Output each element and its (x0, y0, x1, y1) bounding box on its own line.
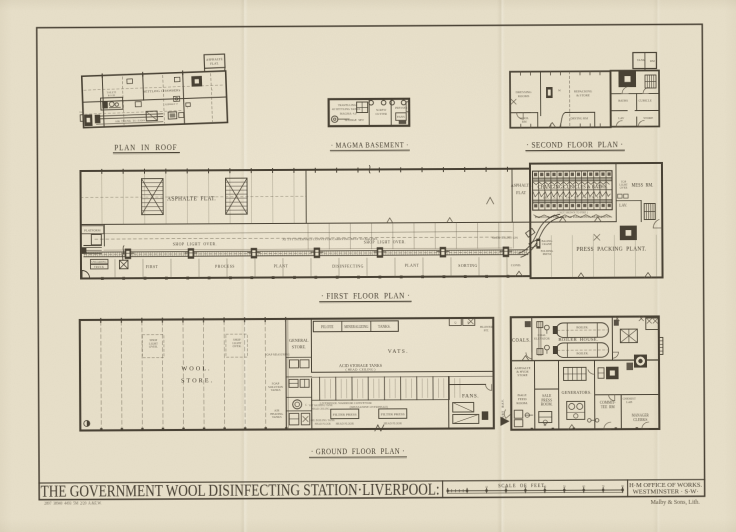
svg-text:VATS.: VATS. (388, 349, 409, 355)
svg-text:· FIRST FLOOR PLAN ·: · FIRST FLOOR PLAN · (321, 290, 410, 300)
svg-text:19. 13. 15. 16. 15. 14. 13. 15: 19. 13. 15. 16. 15. 14. 13. 15. (543, 195, 603, 199)
svg-text:COALS.: COALS. (512, 339, 531, 344)
svg-text:STORE.: STORE. (181, 377, 214, 384)
svg-text:HEAD FLOOR: HEAD FLOOR (315, 422, 331, 425)
svg-text:ELEVATOR: ELEVATOR (534, 337, 551, 341)
svg-text:PILOTE: PILOTE (321, 325, 334, 329)
svg-text:AT 5 FT INTERVALS CONVEYOR CAR: AT 5 FT INTERVALS CONVEYOR CARRYING BEST… (282, 237, 377, 241)
svg-text:TRUCK: TRUCK (94, 266, 104, 269)
svg-text:CLERKS: CLERKS (633, 418, 647, 422)
svg-text:⊕: ⊕ (543, 423, 546, 427)
svg-text:CUTTER: CUTTER (375, 112, 387, 116)
svg-text:H·M OFFICE OF WORKS.: H·M OFFICE OF WORKS. (629, 483, 703, 489)
svg-text:TANKS: TANKS (271, 388, 281, 392)
svg-text:· GROUND FLOOR PLAN ·: · GROUND FLOOR PLAN · (311, 446, 405, 456)
svg-text:C: C (305, 403, 307, 407)
svg-text:(MEZZANINE OVERHEAD): (MEZZANINE OVERHEAD) (350, 406, 388, 409)
svg-text:ASPHALT F: ASPHALT F (165, 103, 179, 106)
svg-text:UNLOADING: UNLOADING (91, 261, 106, 264)
svg-text:ASPHALTE: ASPHALTE (511, 183, 532, 188)
svg-text:TEE RM: TEE RM (601, 405, 616, 409)
svg-text:PROCESS: PROCESS (215, 265, 235, 269)
svg-text:RM: RM (650, 59, 655, 63)
svg-text:ROOM.: ROOM. (541, 403, 553, 407)
svg-text:TANKS.: TANKS. (378, 325, 391, 329)
svg-text:MINERALIZING: MINERALIZING (344, 325, 368, 329)
svg-text:DISINFECTING: DISINFECTING (332, 265, 364, 269)
svg-text:MESS RM.: MESS RM. (632, 182, 654, 188)
svg-text:BOILER HOUSE.: BOILER HOUSE. (558, 337, 598, 342)
svg-text:FANS: FANS (397, 115, 405, 119)
svg-text:ROOMS: ROOMS (518, 94, 530, 98)
svg-text:BOILER.: BOILER. (576, 352, 588, 356)
svg-text:WESTMINSTER · S·W·: WESTMINSTER · S·W· (633, 489, 699, 495)
svg-text:40 SETTLING TANKS: 40 SETTLING TANKS (332, 107, 361, 111)
svg-text:FLAT: FLAT (516, 190, 526, 195)
svg-text:COND.: COND. (511, 263, 522, 267)
svg-text:FILTER PRESS: FILTER PRESS (333, 412, 357, 416)
svg-text:PRESS: PRESS (543, 252, 552, 256)
svg-text:HEAD FLOOR: HEAD FLOOR (384, 421, 402, 425)
svg-text:PLANT: PLANT (405, 264, 420, 268)
svg-text:DRYING RM: DRYING RM (570, 116, 588, 120)
svg-text:LAV.: LAV. (619, 204, 627, 208)
svg-text:STORE.: STORE. (292, 344, 306, 349)
svg-text:CHANGING CUBICLES & BATHS.: CHANGING CUBICLES & BATHS. (538, 185, 608, 190)
svg-text:WOOL.: WOOL. (181, 365, 211, 372)
svg-text:RM: RM (522, 120, 527, 124)
svg-text:STORE: STORE (643, 116, 653, 120)
svg-text:SORTING: SORTING (458, 264, 477, 268)
svg-text:BATHS: BATHS (618, 99, 628, 103)
svg-text:THE GOVERNMENT WOOL DISINFECTI: THE GOVERNMENT WOOL DISINFECTING STATION… (41, 480, 440, 501)
svg-text:PLATFORM: PLATFORM (84, 228, 100, 232)
svg-text:ROOM.: ROOM. (516, 401, 528, 405)
svg-text:Malby & Sons, Lith.: Malby & Sons, Lith. (651, 500, 701, 506)
svg-text:TANK: TANK (637, 58, 646, 62)
svg-text:FILTER PRESS: FILTER PRESS (381, 412, 405, 416)
svg-text:ROOM: ROOM (108, 94, 116, 97)
svg-text:FAN: FAN (79, 111, 84, 114)
svg-text:PRESS PACKING PLANT.: PRESS PACKING PLANT. (576, 247, 646, 253)
svg-text:LAB: LAB (626, 400, 632, 404)
svg-text:2897 38940 4493 5M 2/20 A: 2897 38940 4493 5M 2/20 A.&E.W. (44, 501, 101, 505)
svg-text:HEAD CEILING: HEAD CEILING (312, 407, 330, 410)
svg-text:SOAP MEASURING: SOAP MEASURING (265, 352, 290, 356)
svg-text:W: W (558, 88, 561, 92)
svg-text:( HEAD CEILING ): ( HEAD CEILING ) (346, 368, 376, 372)
svg-text:PLANT: PLANT (274, 264, 289, 268)
svg-text:& STORE: & STORE (576, 93, 590, 97)
svg-text:FLAT.: FLAT. (210, 61, 219, 65)
svg-text:GENERAL: GENERAL (289, 338, 309, 343)
svg-text:MAGMA 4.0: MAGMA 4.0 (340, 112, 357, 116)
svg-text:GENERATORS.: GENERATORS. (562, 390, 592, 395)
svg-text:ASPHALTE FLAT.: ASPHALTE FLAT. (167, 195, 216, 202)
svg-text:· MAGMA BASEMENT ·: · MAGMA BASEMENT · (331, 140, 409, 149)
svg-text:PRESSES: PRESSES (395, 106, 408, 110)
svg-text:PIT.: PIT. (484, 328, 489, 332)
svg-text:LAV: LAV (618, 116, 625, 120)
svg-text:BOILER.: BOILER. (576, 326, 588, 330)
svg-text:FANS.: FANS. (462, 393, 479, 399)
svg-text:STORE: STORE (517, 373, 527, 377)
svg-text:OVER.: OVER. (232, 344, 241, 348)
svg-text:· SECOND FLOOR PLAN ·: · SECOND FLOOR PLAN · (526, 139, 623, 150)
svg-text:TANKS: TANKS (272, 415, 282, 419)
svg-text:OVER: OVER (620, 186, 628, 190)
svg-text:SLUDGE SET: SLUDGE SET (345, 118, 364, 122)
svg-text:CUBICLE: CUBICLE (638, 99, 651, 103)
svg-text:PLAN IN ROOF: PLAN IN ROOF (114, 142, 177, 152)
svg-text:BRIDGE FOR PRESS PACKING MACHI: BRIDGE FOR PRESS PACKING MACHINE (535, 215, 611, 219)
svg-text:SHOP LIGHT OVER.: SHOP LIGHT OVER. (173, 241, 217, 246)
svg-text:CRANE: CRANE (542, 242, 552, 246)
svg-text:OVER.: OVER. (149, 345, 158, 349)
svg-text:FIRST: FIRST (146, 265, 159, 269)
svg-text:HEAD FLOOR: HEAD FLOOR (336, 421, 354, 425)
svg-text:SHOP LIGHT ON: SHOP LIGHT ON (492, 236, 518, 240)
